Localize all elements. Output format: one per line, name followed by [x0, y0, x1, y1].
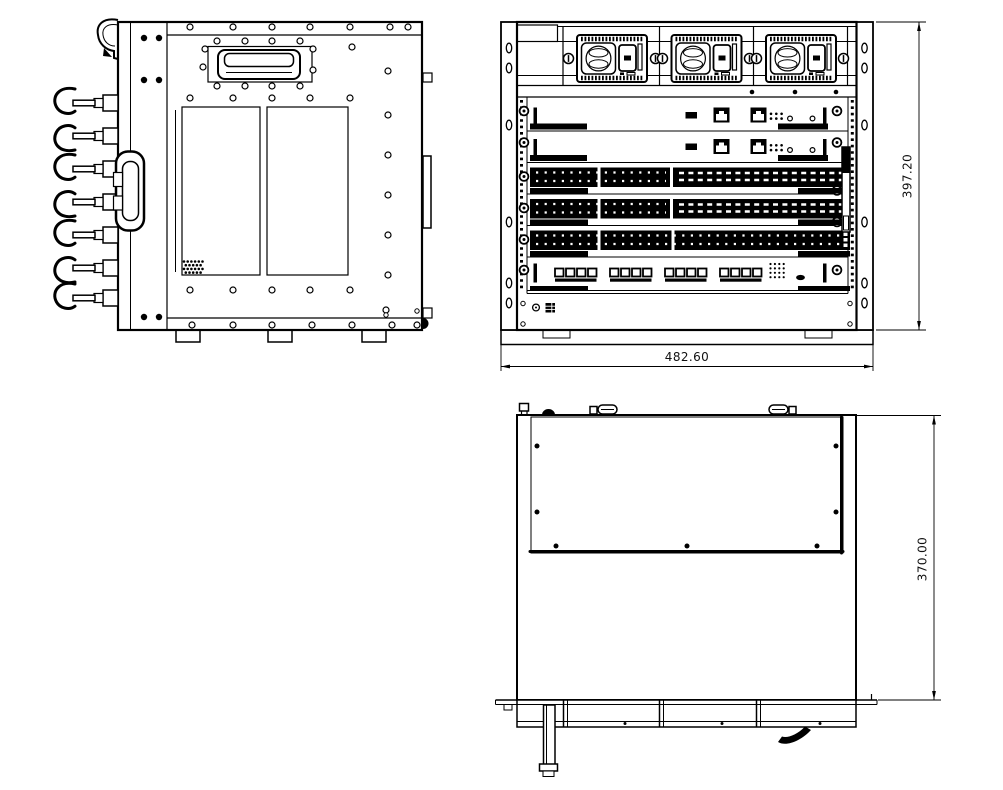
psu-unit-2 — [672, 35, 742, 82]
top-view — [496, 404, 878, 777]
pull-handle-loop — [114, 152, 145, 231]
dimension-label-front-width: 482.60 — [665, 350, 709, 364]
rack-ear-left — [501, 22, 517, 330]
top-body — [517, 415, 856, 700]
cad-sheet: 397.20 482.60 370.00 — [0, 0, 1003, 790]
carry-handle — [208, 47, 312, 83]
technical-drawing-sheet: 397.20 482.60 370.00 — [0, 0, 1003, 790]
rear-latch-left — [590, 405, 617, 414]
dimension-label-front-height: 397.20 — [901, 154, 915, 198]
rack-ear-right — [857, 22, 874, 330]
front-view — [501, 22, 873, 345]
rear-latch-right — [769, 405, 796, 414]
mounting-flange — [501, 330, 873, 345]
psu-unit-3 — [766, 35, 836, 82]
cage-pull-handle — [842, 147, 850, 232]
psu-unit-1 — [577, 35, 647, 82]
dimension-label-top-depth: 370.00 — [916, 537, 930, 581]
